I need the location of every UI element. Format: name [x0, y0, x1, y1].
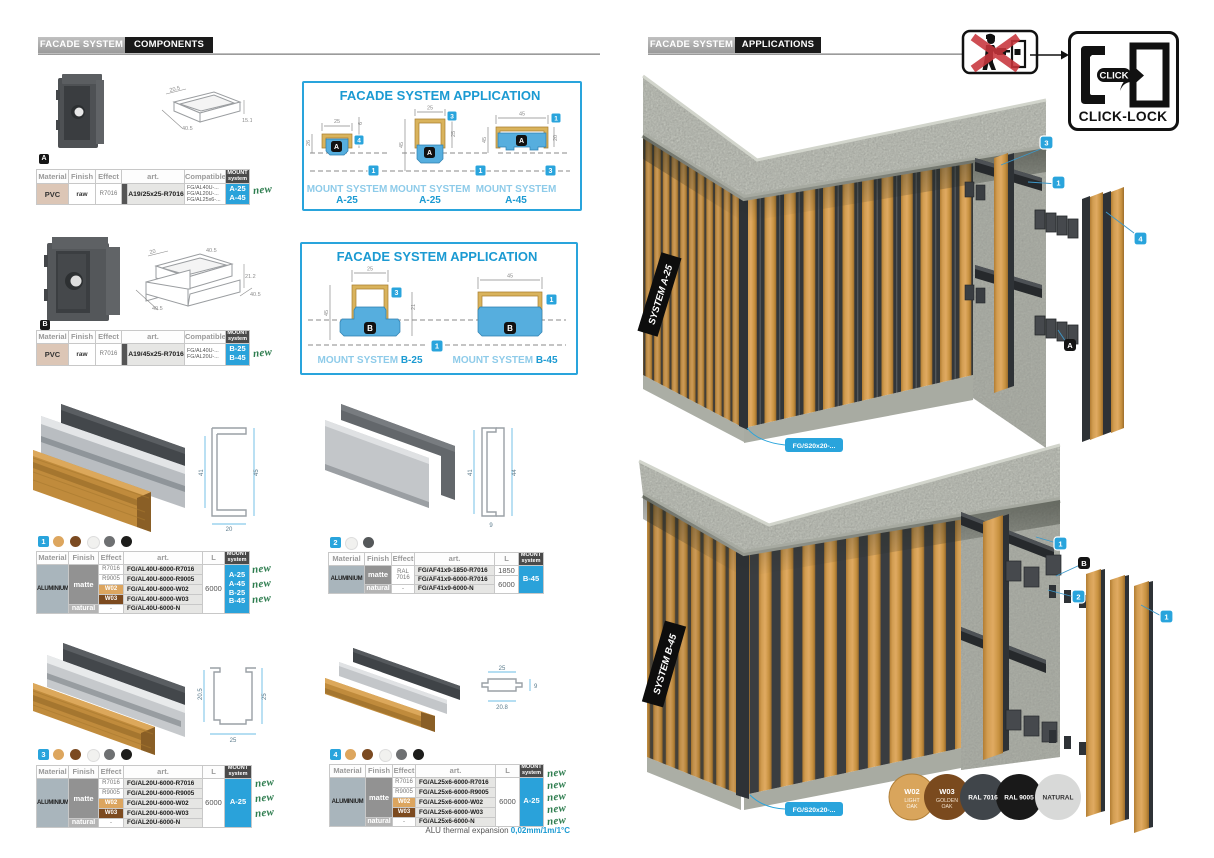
svg-text:OAK: OAK: [942, 804, 953, 810]
svg-text:25: 25: [334, 119, 340, 125]
svg-text:1: 1: [372, 168, 376, 175]
svg-text:26: 26: [306, 140, 312, 146]
svg-text:20.8: 20.8: [496, 705, 508, 711]
svg-text:NATURAL: NATURAL: [1043, 795, 1074, 802]
svg-text:25: 25: [499, 666, 506, 672]
svg-text:25: 25: [230, 738, 237, 744]
svg-text:A: A: [1067, 341, 1073, 350]
svg-text:A: A: [519, 138, 524, 145]
svg-text:45: 45: [519, 112, 525, 118]
svg-text:25: 25: [367, 267, 373, 273]
svg-text:44: 44: [512, 469, 518, 476]
svg-text:9: 9: [534, 684, 538, 690]
svg-text:FG/S20x20-...: FG/S20x20-...: [793, 443, 836, 450]
svg-text:6: 6: [358, 122, 364, 125]
svg-text:1: 1: [1058, 540, 1062, 549]
svg-text:1: 1: [1056, 179, 1060, 188]
svg-text:RAL 7016: RAL 7016: [968, 795, 998, 802]
svg-text:3: 3: [450, 114, 454, 121]
svg-text:1: 1: [550, 297, 554, 304]
svg-text:4: 4: [357, 138, 361, 145]
svg-text:40.5: 40.5: [152, 306, 163, 312]
svg-text:21.2: 21.2: [245, 274, 256, 280]
svg-text:3: 3: [1044, 139, 1048, 148]
svg-text:1: 1: [1164, 613, 1168, 622]
svg-text:A: A: [427, 150, 432, 157]
svg-text:9: 9: [489, 523, 493, 529]
svg-text:45: 45: [482, 137, 488, 143]
svg-text:45: 45: [254, 469, 260, 476]
svg-text:41: 41: [468, 469, 474, 476]
svg-text:W02: W02: [904, 787, 919, 796]
svg-text:OAK: OAK: [907, 804, 918, 810]
svg-text:20.5: 20.5: [169, 86, 181, 94]
svg-text:45: 45: [507, 274, 513, 280]
svg-text:RAL 9005: RAL 9005: [1004, 795, 1034, 802]
svg-text:15.1: 15.1: [242, 118, 252, 124]
svg-text:B: B: [507, 324, 513, 333]
svg-text:21: 21: [411, 304, 417, 310]
svg-text:20: 20: [226, 527, 233, 532]
svg-text:40.5: 40.5: [206, 248, 217, 254]
svg-text:41: 41: [199, 469, 205, 476]
svg-text:40.5: 40.5: [250, 292, 261, 298]
svg-text:1: 1: [554, 116, 558, 123]
svg-text:B: B: [1081, 559, 1087, 568]
svg-text:45: 45: [324, 310, 330, 316]
svg-text:W03: W03: [939, 787, 954, 796]
svg-text:B: B: [367, 324, 373, 333]
svg-text:20: 20: [553, 135, 559, 141]
svg-text:A: A: [334, 144, 339, 151]
svg-text:20.5: 20.5: [198, 688, 204, 700]
svg-text:25: 25: [451, 131, 457, 137]
svg-text:1: 1: [479, 168, 483, 175]
svg-text:1: 1: [435, 342, 439, 351]
svg-text:FG/S20x20-...: FG/S20x20-...: [793, 807, 836, 814]
svg-text:3: 3: [395, 290, 399, 297]
svg-text:25: 25: [427, 106, 433, 112]
svg-text:45: 45: [399, 142, 405, 148]
svg-text:2: 2: [1076, 593, 1080, 602]
svg-text:3: 3: [549, 168, 553, 175]
svg-text:25: 25: [262, 693, 268, 700]
svg-text:40.5: 40.5: [182, 126, 193, 132]
svg-text:20: 20: [149, 249, 156, 256]
